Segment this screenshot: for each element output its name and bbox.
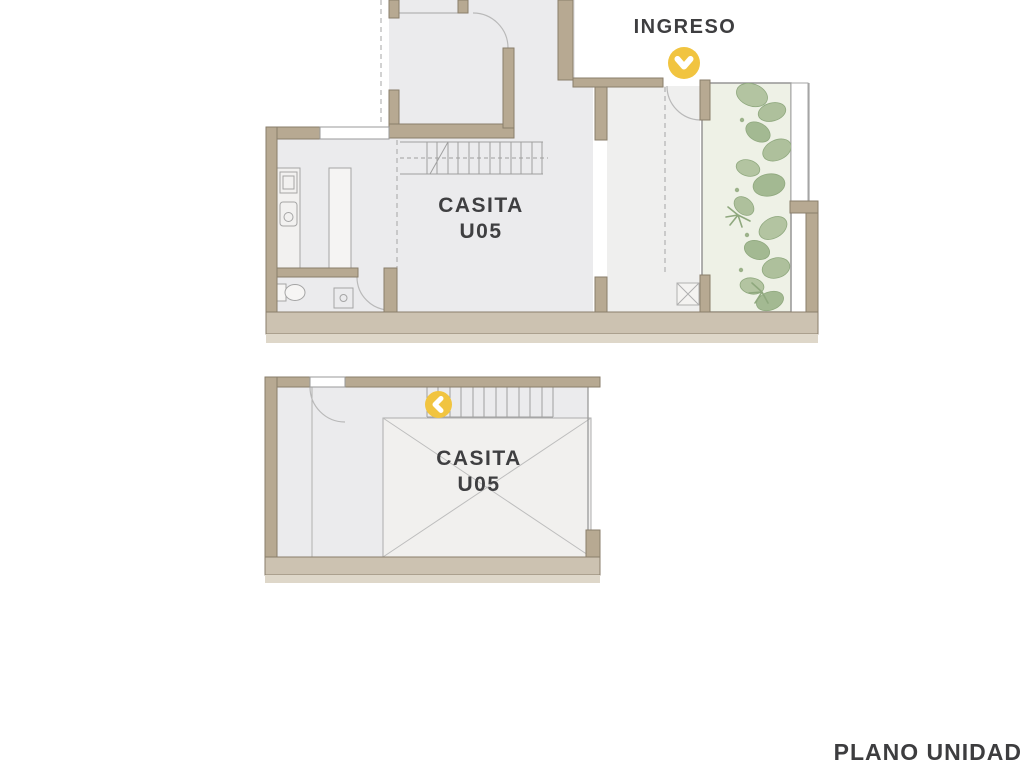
toilet-icon xyxy=(285,285,305,301)
floor-plan-page: INGRESO CASITA U05 CASITA U05 PLANO UNID… xyxy=(0,0,1024,768)
upper-unit-number: U05 xyxy=(459,220,502,243)
lower-unit-name: CASITA xyxy=(436,447,522,470)
plan-caption: PLANO UNIDAD xyxy=(834,739,1022,766)
upper-floors xyxy=(277,0,700,330)
garden-area xyxy=(702,79,809,314)
lower-unit-label: CASITA U05 xyxy=(394,446,564,498)
chevron-down-icon xyxy=(668,47,700,79)
level-nav-marker[interactable] xyxy=(425,391,452,418)
upper-unit-label: CASITA U05 xyxy=(396,193,566,245)
floor-plan-drawing xyxy=(0,0,1024,768)
lower-plinth xyxy=(265,557,600,583)
lower-unit-number: U05 xyxy=(457,473,500,496)
window xyxy=(320,127,389,139)
entry-label: INGRESO xyxy=(600,16,770,39)
entry-marker[interactable] xyxy=(668,47,700,79)
upper-unit-name: CASITA xyxy=(438,194,524,217)
upper-plinth xyxy=(266,312,818,343)
drain-icon xyxy=(677,283,699,305)
upper-floor-plan xyxy=(266,0,818,343)
chevron-left-icon xyxy=(425,391,452,418)
entry-door-opening xyxy=(310,377,345,387)
